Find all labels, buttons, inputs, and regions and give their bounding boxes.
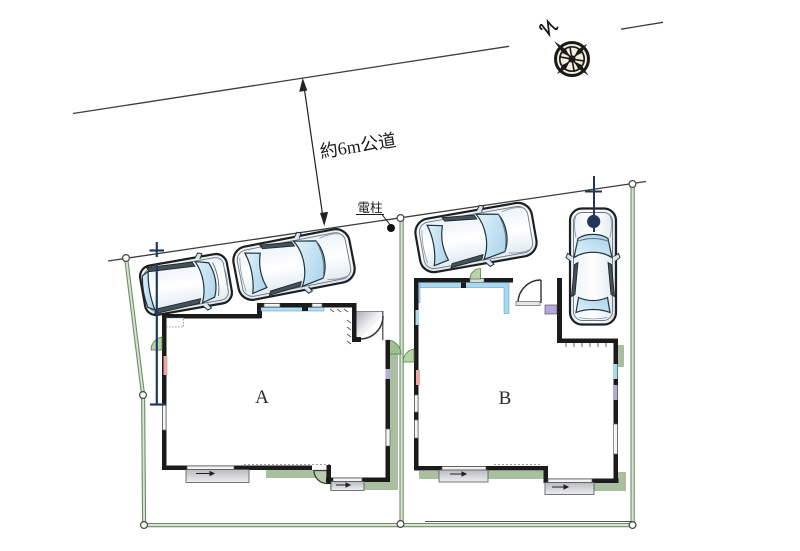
svg-text:B: B xyxy=(499,388,512,409)
svg-text:約6m公道: 約6m公道 xyxy=(318,130,397,162)
svg-text:電柱: 電柱 xyxy=(357,200,382,215)
svg-text:A: A xyxy=(255,387,269,408)
